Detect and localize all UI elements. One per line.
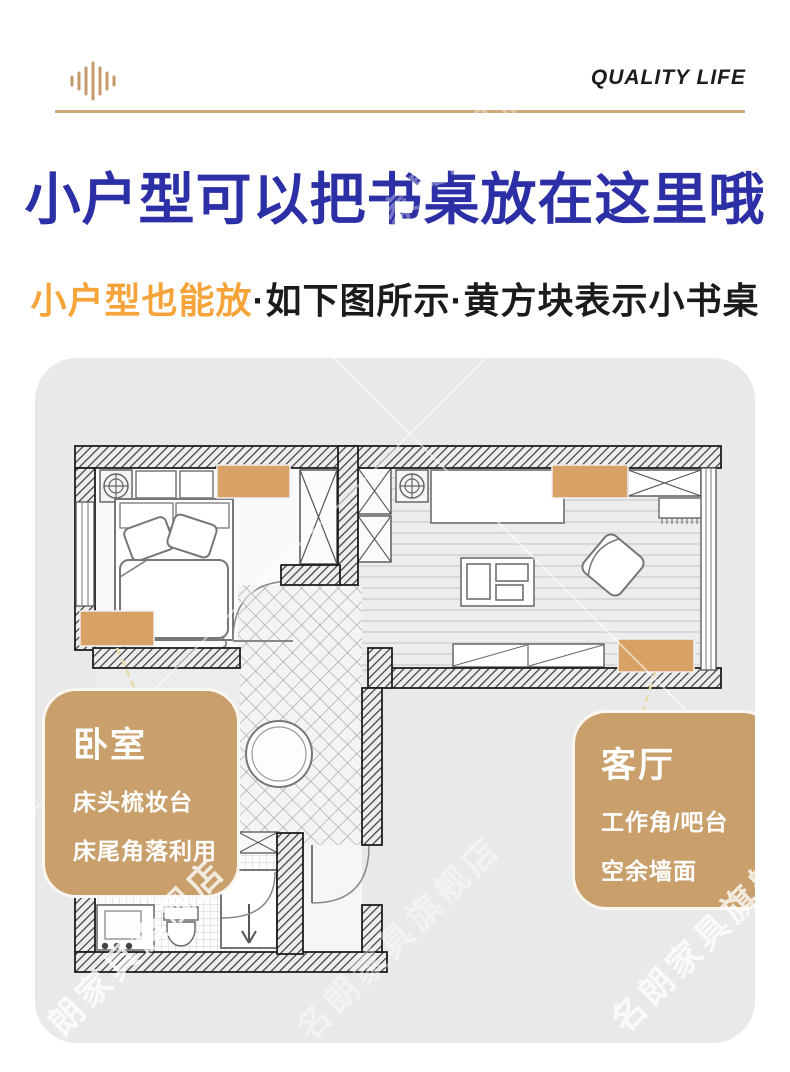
wall-notch	[368, 648, 392, 688]
wall-corridor-right	[362, 688, 382, 845]
callout-bedroom-title: 卧室	[73, 717, 237, 768]
brand-label: QUALITY LIFE	[591, 66, 746, 90]
vanity-sink	[97, 905, 154, 950]
nightstand	[136, 471, 176, 498]
round-table	[246, 721, 312, 787]
subtitle-rest: ·如下图所示·黄方块表示小书桌	[253, 280, 760, 321]
gold-divider	[55, 110, 745, 113]
callout-bedroom: 卧室 床头梳妆台 床尾角落利用	[42, 688, 240, 898]
callout-bedroom-line: 床尾角落利用	[73, 832, 237, 866]
callout-living-line: 空余墙面	[601, 852, 755, 886]
ceiling-fan-icon	[396, 470, 428, 502]
callout-living-line: 工作角/吧台	[601, 803, 755, 837]
wall-divider	[338, 446, 358, 585]
hallway-floor	[238, 585, 362, 847]
window-left	[76, 502, 94, 606]
desk-marker-living-top	[552, 465, 628, 498]
wall-divider-stub	[281, 565, 340, 585]
window-right	[701, 468, 716, 670]
wall-bedroom-bottom	[93, 648, 240, 668]
sound-wave-icon-svg	[68, 60, 120, 102]
wall-bathroom-right	[277, 833, 303, 954]
callout-living-title: 客厅	[601, 737, 755, 788]
wall-bottom	[75, 952, 387, 972]
nightstand	[180, 471, 213, 498]
coffee-table	[461, 558, 534, 606]
callout-living: 客厅 工作角/吧台 空余墙面	[572, 710, 755, 910]
subtitle-highlight: 小户型也能放	[31, 280, 253, 321]
wall-corridor-right-lower	[362, 905, 382, 952]
desk-marker-bedroom-foot	[80, 611, 154, 646]
floorplan-card: 卧室 床头梳妆台 床尾角落利用 客厅 工作角/吧台 空余墙面	[35, 358, 755, 1043]
tv-cabinet	[453, 644, 604, 667]
ceiling-fan-icon	[100, 470, 132, 502]
callout-bedroom-line: 床头梳妆台	[73, 783, 237, 817]
page-subtitle: 小户型也能放·如下图所示·黄方块表示小书桌	[0, 272, 790, 324]
desk-marker-bedroom-headboard	[217, 465, 290, 498]
sofa	[431, 470, 564, 523]
sound-wave-icon	[68, 60, 120, 102]
page-title: 小户型可以把书桌放在这里哦	[0, 168, 790, 235]
